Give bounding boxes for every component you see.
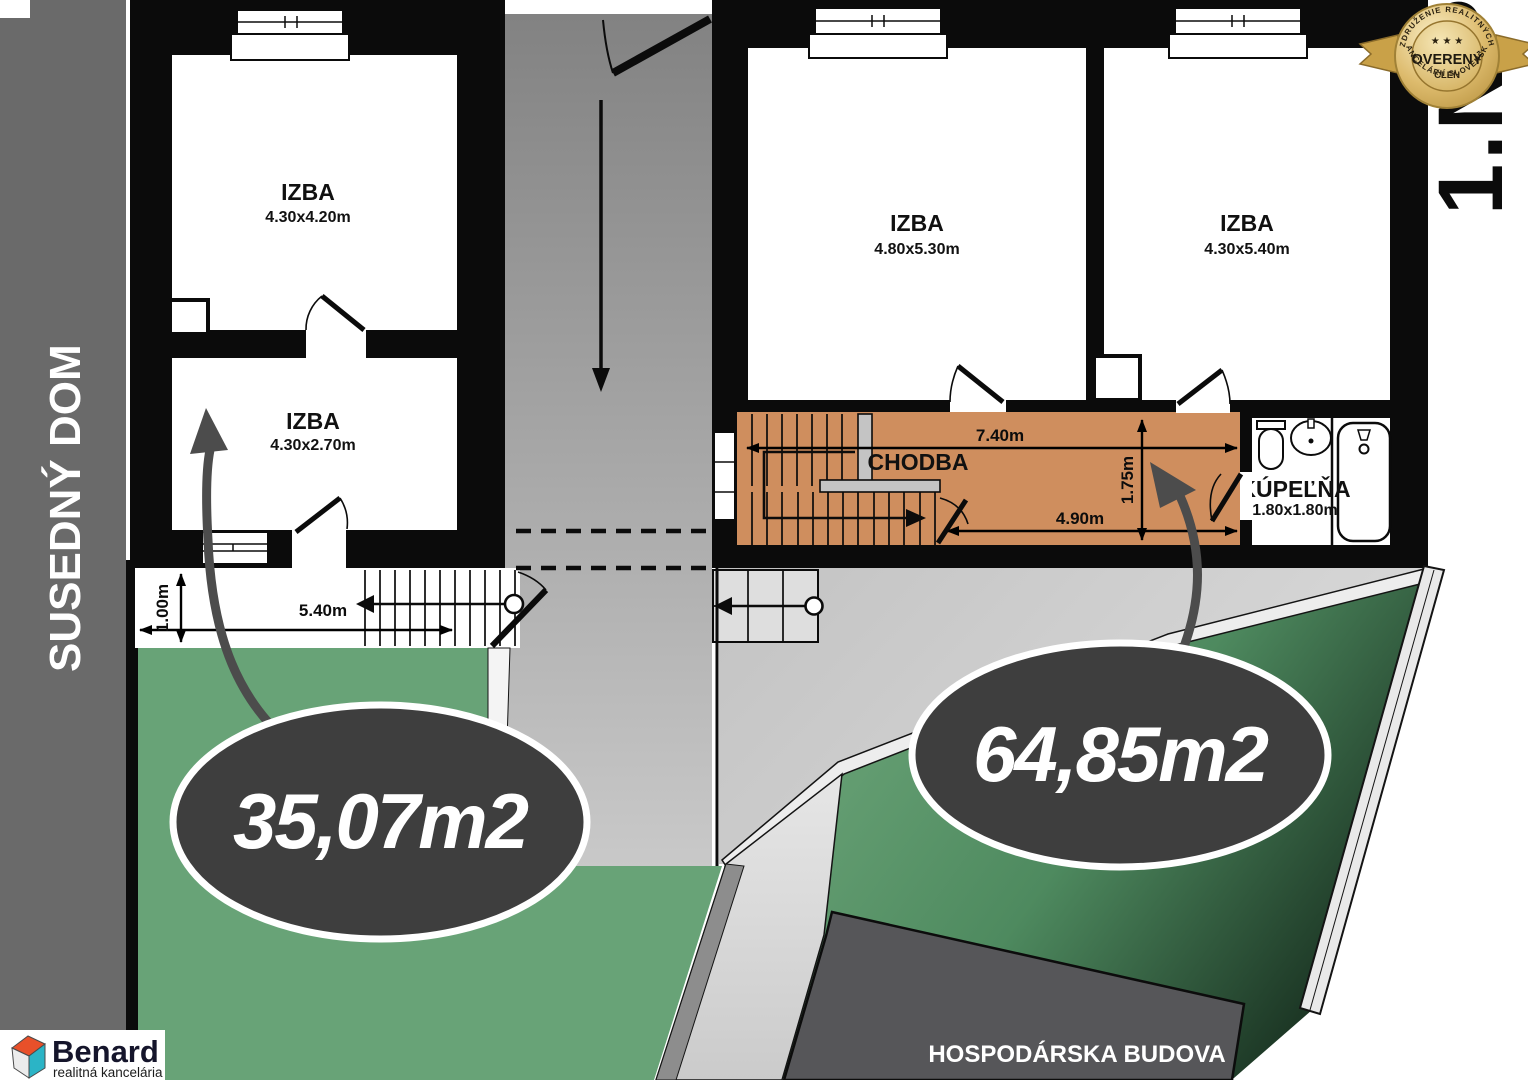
exterior-steps-right (713, 570, 823, 642)
dim-4-90: 4.90m (1056, 509, 1104, 528)
badge-title: OVERENÝ (1412, 50, 1483, 68)
outbuilding-label: HOSPODÁRSKA BUDOVA (928, 1040, 1225, 1068)
corridor-window (714, 432, 735, 520)
stair-railing-bar (820, 480, 940, 492)
window-izba-1 (231, 10, 349, 60)
room-izba-1-name: IZBA (281, 179, 335, 205)
room-izba-3-dims: 4.80x5.30m (874, 241, 959, 258)
window-izba-3 (809, 8, 947, 58)
room-kupelna-name: KÚPEĽŇA (1239, 475, 1350, 502)
dim-5-40: 5.40m (299, 601, 347, 620)
stove-icon (1094, 356, 1140, 400)
badge-stars-icon: ★ ★ ★ (1431, 36, 1463, 47)
room-izba-1-dims: 4.30x4.20m (265, 209, 350, 226)
room-izba-1: IZBA 4.30x4.20m (170, 55, 457, 334)
floorplan-drawing: SUSEDNÝ DOM IZBA 4.30x4.20m IZBA 4.30x2.… (0, 0, 1528, 1080)
room-izba-4-name: IZBA (1220, 210, 1274, 236)
passage (505, 14, 712, 868)
logo-tagline: realitná kancelária (53, 1065, 163, 1080)
dim-7-40: 7.40m (976, 426, 1024, 445)
room-izba-3: IZBA 4.80x5.30m (748, 48, 1086, 400)
room-izba-2-name: IZBA (286, 408, 340, 434)
room-izba-2-dims: 4.30x2.70m (270, 437, 355, 454)
room-kupelna-dims: 1.80x1.80m (1252, 502, 1337, 519)
dim-1-75: 1.75m (1118, 456, 1137, 504)
room-izba-3-name: IZBA (890, 210, 944, 236)
south-walkway: 5.40m 1.00m (135, 568, 546, 648)
room-chodba-name: CHODBA (868, 449, 969, 475)
door-gap (950, 400, 1006, 412)
bathroom-door-gap (1240, 472, 1252, 520)
area-badge-35: 35,07m2 (173, 705, 587, 939)
area-value-64: 64,85m2 (973, 710, 1269, 798)
door-gap (306, 330, 366, 358)
neighbor-building-strip: SUSEDNÝ DOM (0, 0, 126, 1032)
door-gap (292, 530, 346, 568)
room-izba-4: IZBA 4.30x5.40m (1094, 48, 1390, 400)
badge-ribbon-right (1496, 35, 1528, 73)
area-value-35: 35,07m2 (233, 777, 529, 865)
agency-logo: Benard realitná kancelária (0, 1030, 165, 1080)
window-izba-4 (1169, 8, 1307, 58)
area-badge-64: 64,85m2 (912, 643, 1328, 867)
stove-icon (170, 300, 208, 334)
room-izba-4-dims: 4.30x5.40m (1204, 241, 1289, 258)
toilet-icon (1257, 421, 1285, 429)
neighbor-building-label: SUSEDNÝ DOM (40, 344, 90, 672)
dim-1-00: 1.00m (153, 584, 172, 632)
floorplan-page: SUSEDNÝ DOM IZBA 4.30x4.20m IZBA 4.30x2.… (0, 0, 1528, 1080)
logo-brand: Benard (52, 1034, 159, 1069)
badge-subtitle: ČLEN (1434, 69, 1460, 81)
